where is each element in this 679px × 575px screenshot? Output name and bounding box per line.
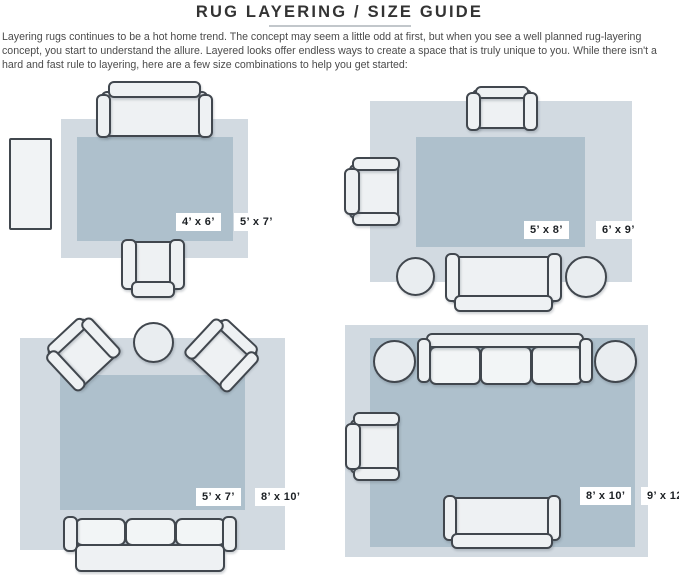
sofa-cushion	[480, 346, 532, 385]
chair-arm	[353, 467, 400, 481]
sofa-cushion	[531, 346, 583, 385]
sofa-back	[451, 533, 553, 549]
layout-bottom-right: 8’ x 10’ 9’ x 12’	[0, 0, 679, 575]
rug-size-guide-infographic: RUG LAYERING / SIZE GUIDE Layering rugs …	[0, 0, 679, 575]
pouf-icon	[594, 340, 637, 383]
inner-rug-size-label: 8’ x 10’	[580, 487, 631, 505]
sofa-icon	[417, 333, 593, 385]
chair-back	[345, 423, 361, 470]
outer-rug-size-label: 9’ x 12’	[641, 487, 679, 505]
chair-arm	[353, 412, 400, 426]
sofa-back	[426, 333, 584, 348]
armchair-icon	[345, 412, 403, 481]
sofa-arm	[417, 338, 431, 383]
pouf-icon	[373, 340, 416, 383]
sofa-arm	[579, 338, 593, 383]
loveseat-icon	[443, 495, 561, 549]
sofa-cushion	[429, 346, 481, 385]
